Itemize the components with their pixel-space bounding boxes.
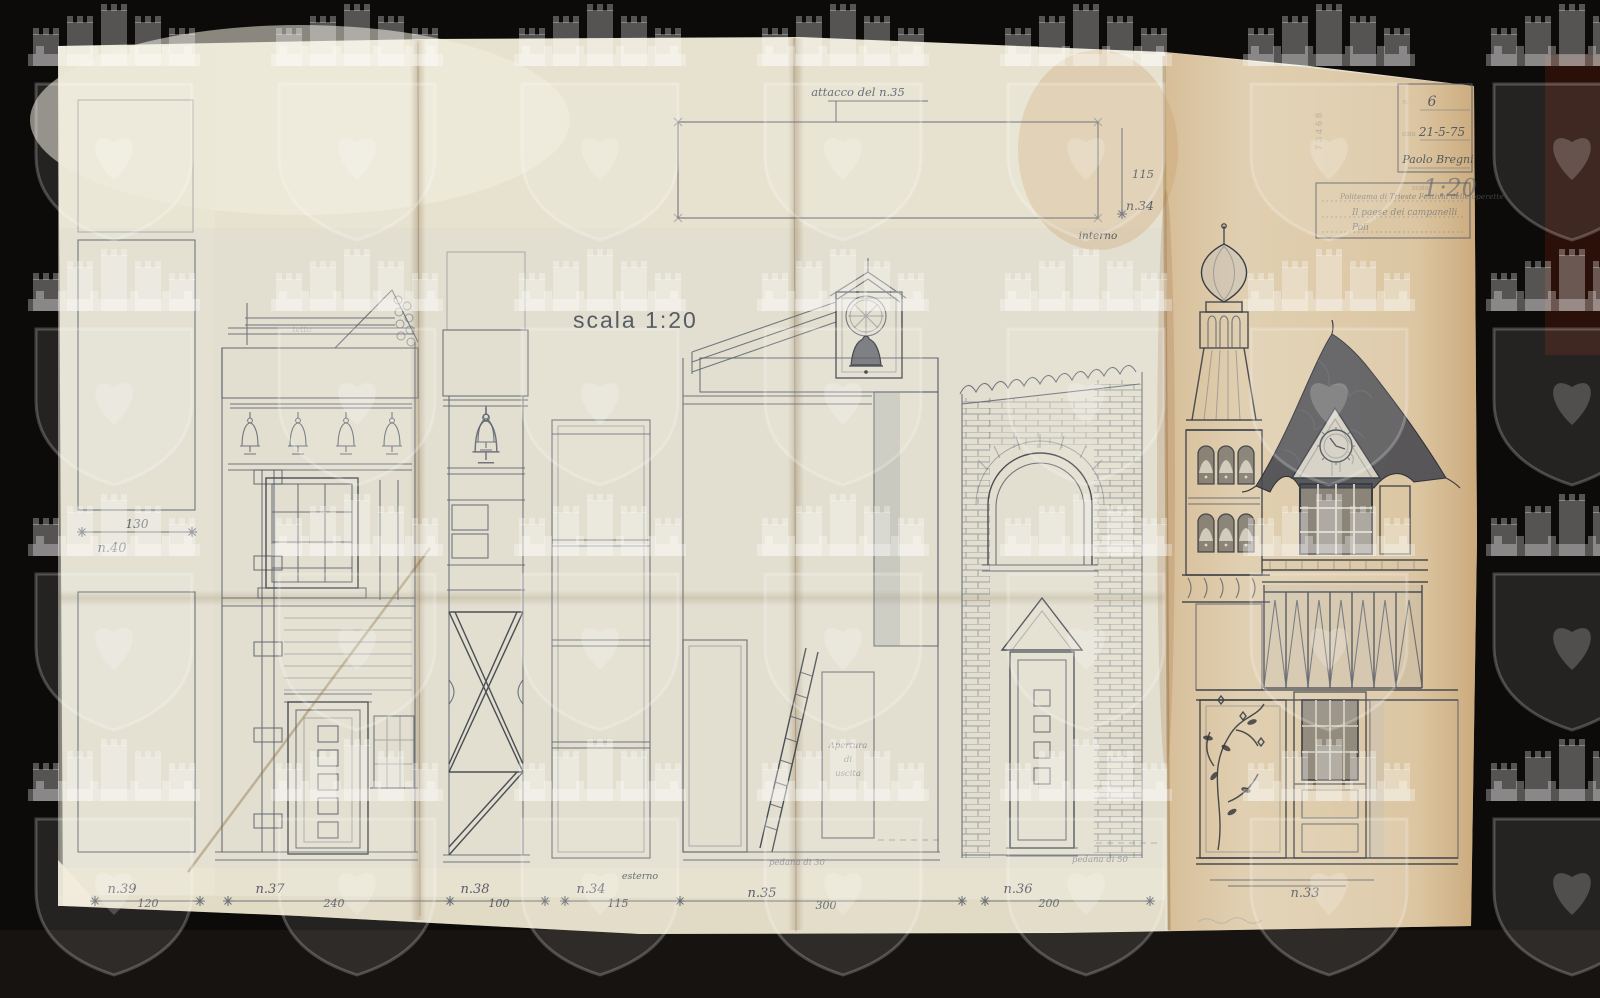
- flat-n38-dim: 100: [489, 897, 510, 910]
- photographed-drawing: attacco del n.35 115 n.34 interno scala …: [0, 0, 1600, 998]
- author-signature: Paolo Bregni: [1401, 153, 1473, 166]
- sheet-number-value: 6: [1428, 94, 1437, 110]
- scan-canvas: attacco del n.35 115 n.34 interno scala …: [0, 0, 1600, 998]
- flat-n38-id: n.38: [460, 882, 489, 897]
- date-value: 21-5-75: [1418, 125, 1465, 139]
